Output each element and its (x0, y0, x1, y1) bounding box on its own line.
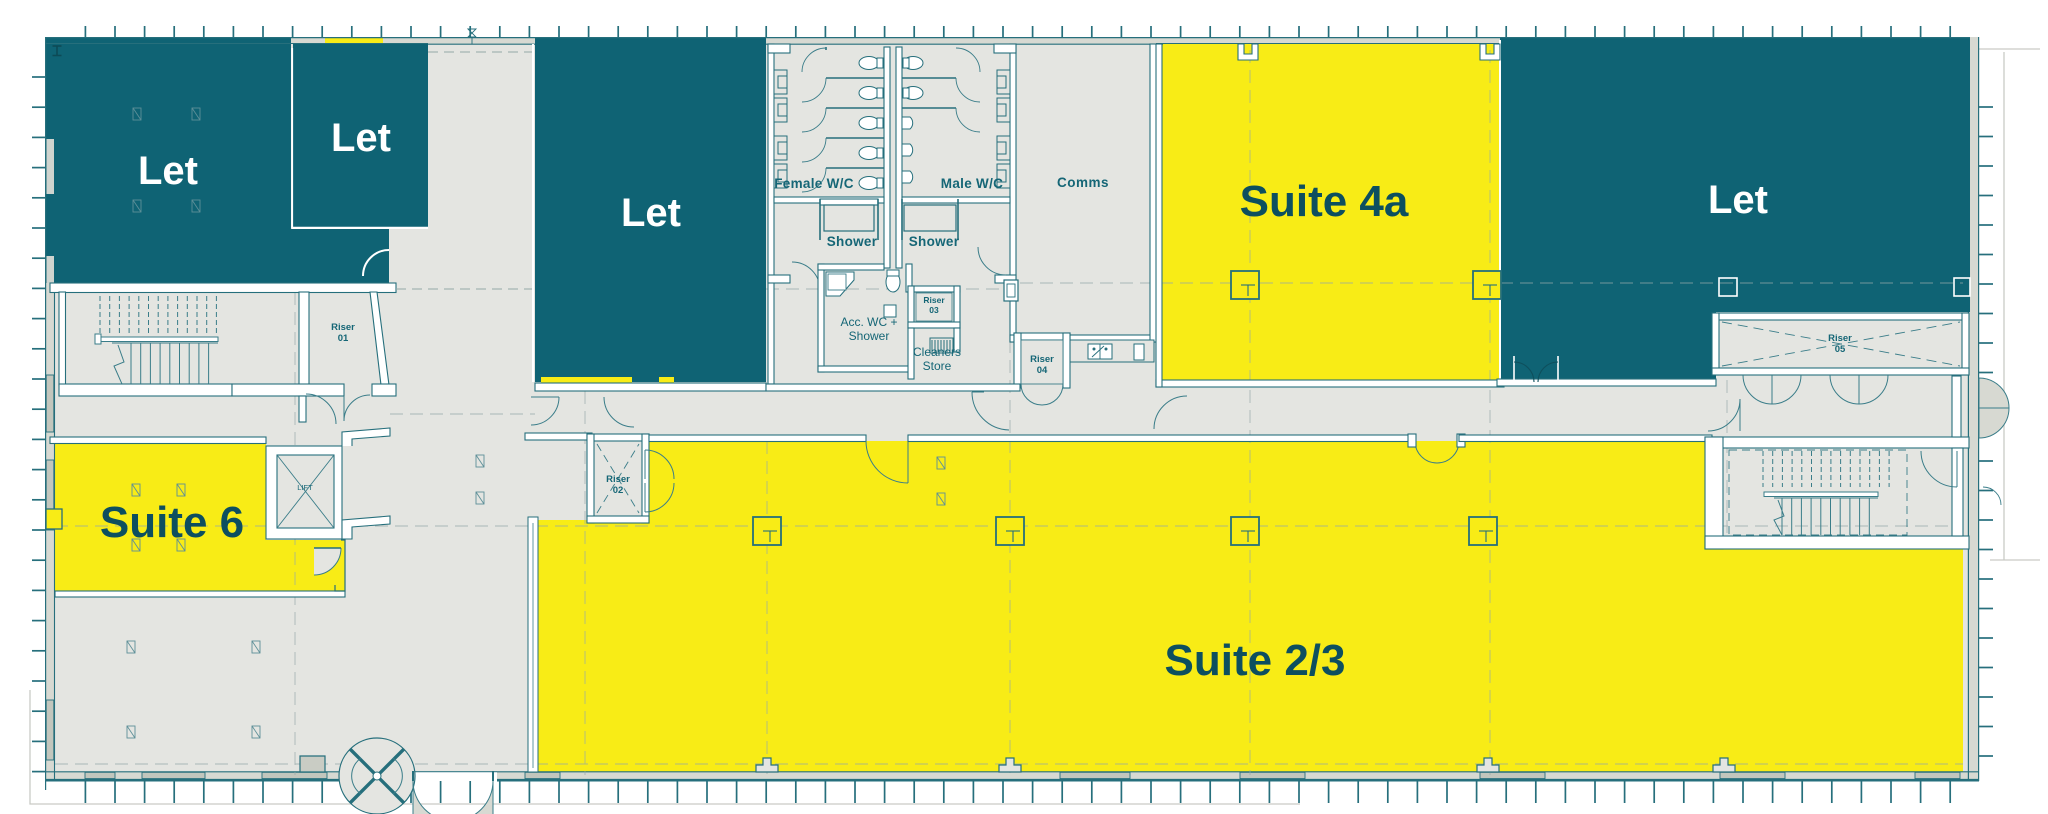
svg-text:Cleaners: Cleaners (913, 345, 961, 359)
svg-text:Shower: Shower (827, 234, 878, 249)
svg-text:Female W/C: Female W/C (774, 176, 854, 191)
svg-text:05: 05 (1835, 344, 1846, 355)
svg-text:Suite 6: Suite 6 (100, 498, 244, 547)
svg-text:Riser: Riser (606, 474, 630, 485)
svg-text:Riser: Riser (923, 295, 945, 305)
svg-text:Let: Let (331, 116, 391, 160)
svg-text:Shower: Shower (909, 234, 960, 249)
svg-text:Comms: Comms (1057, 175, 1109, 190)
svg-text:Riser: Riser (331, 322, 355, 333)
svg-text:03: 03 (929, 305, 939, 315)
svg-text:Suite 2/3: Suite 2/3 (1165, 636, 1346, 685)
svg-text:Riser: Riser (1828, 333, 1852, 344)
svg-text:Acc. WC +: Acc. WC + (840, 315, 897, 329)
svg-text:02: 02 (613, 485, 624, 496)
svg-text:Store: Store (923, 359, 952, 373)
svg-text:04: 04 (1037, 365, 1048, 376)
svg-text:LIFT: LIFT (297, 483, 313, 492)
svg-text:Male W/C: Male W/C (941, 176, 1003, 191)
svg-text:Let: Let (621, 191, 681, 235)
svg-text:01: 01 (338, 333, 349, 344)
svg-text:Shower: Shower (849, 329, 890, 343)
svg-text:Suite 4a: Suite 4a (1240, 177, 1409, 226)
svg-text:Let: Let (138, 149, 198, 193)
svg-text:Let: Let (1708, 178, 1768, 222)
svg-text:Riser: Riser (1030, 354, 1054, 365)
